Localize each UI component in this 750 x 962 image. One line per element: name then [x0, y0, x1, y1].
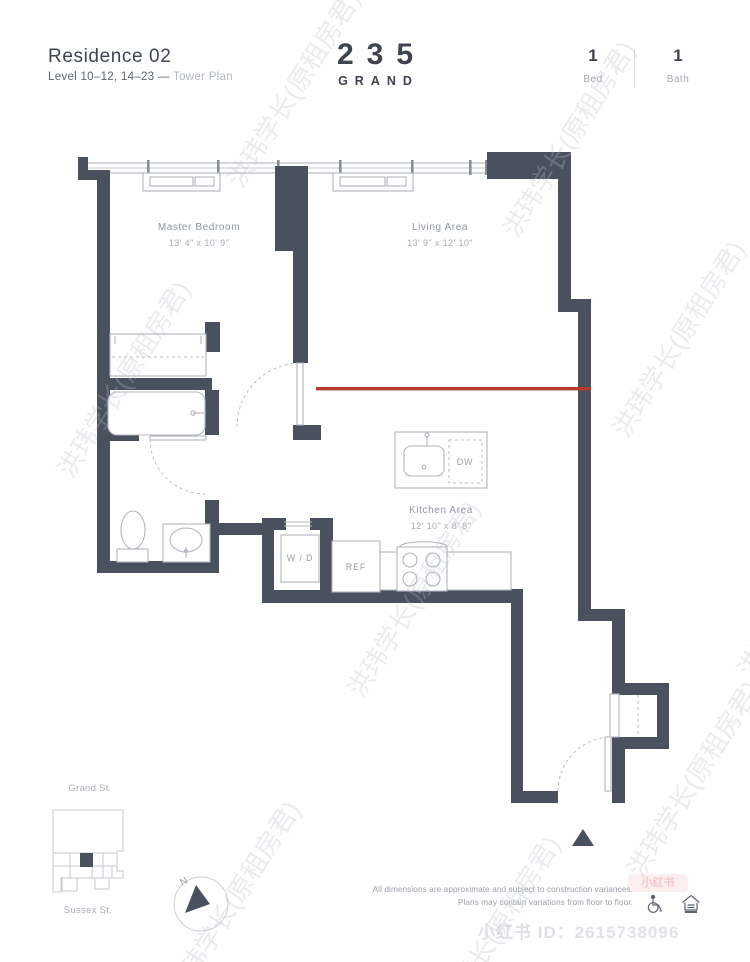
washer-dryer-label: W / D	[287, 553, 314, 563]
kitchen-area-dims: 12' 10" x 8' 8"	[411, 521, 471, 531]
bathroom-door-swing	[150, 439, 205, 494]
stove	[397, 547, 447, 591]
disclaimer-line1: All dimensions are approximate and subje…	[373, 885, 633, 894]
refrigerator: REF	[332, 541, 380, 592]
entry-door-leaf	[605, 737, 611, 791]
toilet	[117, 511, 148, 562]
unit-location-marker	[80, 853, 93, 867]
entry-door-swing	[558, 737, 612, 791]
entry-closet-door	[610, 694, 619, 737]
street-top-label: Grand St.	[68, 783, 111, 794]
site-map: Grand St. Sussex St.	[53, 783, 123, 916]
refrigerator-label: REF	[346, 562, 366, 572]
dishwasher-label: DW	[457, 457, 474, 467]
bedroom-door-swing	[237, 363, 301, 427]
equal-housing-icon	[683, 896, 700, 913]
wheelchair-icon	[648, 895, 662, 913]
bathroom-vanity	[163, 524, 210, 562]
disclaimer: All dimensions are approximate and subje…	[373, 885, 700, 912]
kitchen-counter	[380, 542, 511, 591]
bathtub	[108, 392, 206, 435]
washer-dryer: W / D	[281, 535, 319, 582]
entry-marker-triangle-icon	[572, 829, 594, 846]
bedroom-closet	[110, 334, 206, 376]
kitchen-area-label: Kitchen Area	[409, 505, 473, 516]
walls	[78, 152, 669, 803]
living-area-dims: 13' 9" x 12' 10"	[407, 238, 473, 248]
master-bedroom-label: Master Bedroom	[158, 222, 240, 233]
compass-north-arrow-icon	[185, 885, 210, 913]
bedroom-door-leaf	[297, 363, 303, 425]
compass: N	[174, 876, 228, 931]
disclaimer-line2: Plans may contain variations from floor …	[458, 898, 633, 907]
bathroom-door-leaf	[150, 436, 206, 440]
living-area-label: Living Area	[412, 222, 468, 233]
master-bedroom-dims: 13' 4" x 10' 9"	[169, 238, 229, 248]
kitchen-island: DW	[395, 432, 487, 488]
floorplan-page: Residence 02 Level 10–12, 14–23 — Tower …	[0, 0, 750, 962]
floor-plan: DW REF W / D Master Bedroom 13' 4" x 10'…	[0, 0, 750, 962]
street-bottom-label: Sussex St.	[64, 905, 112, 916]
red-annotation-line	[316, 387, 591, 390]
